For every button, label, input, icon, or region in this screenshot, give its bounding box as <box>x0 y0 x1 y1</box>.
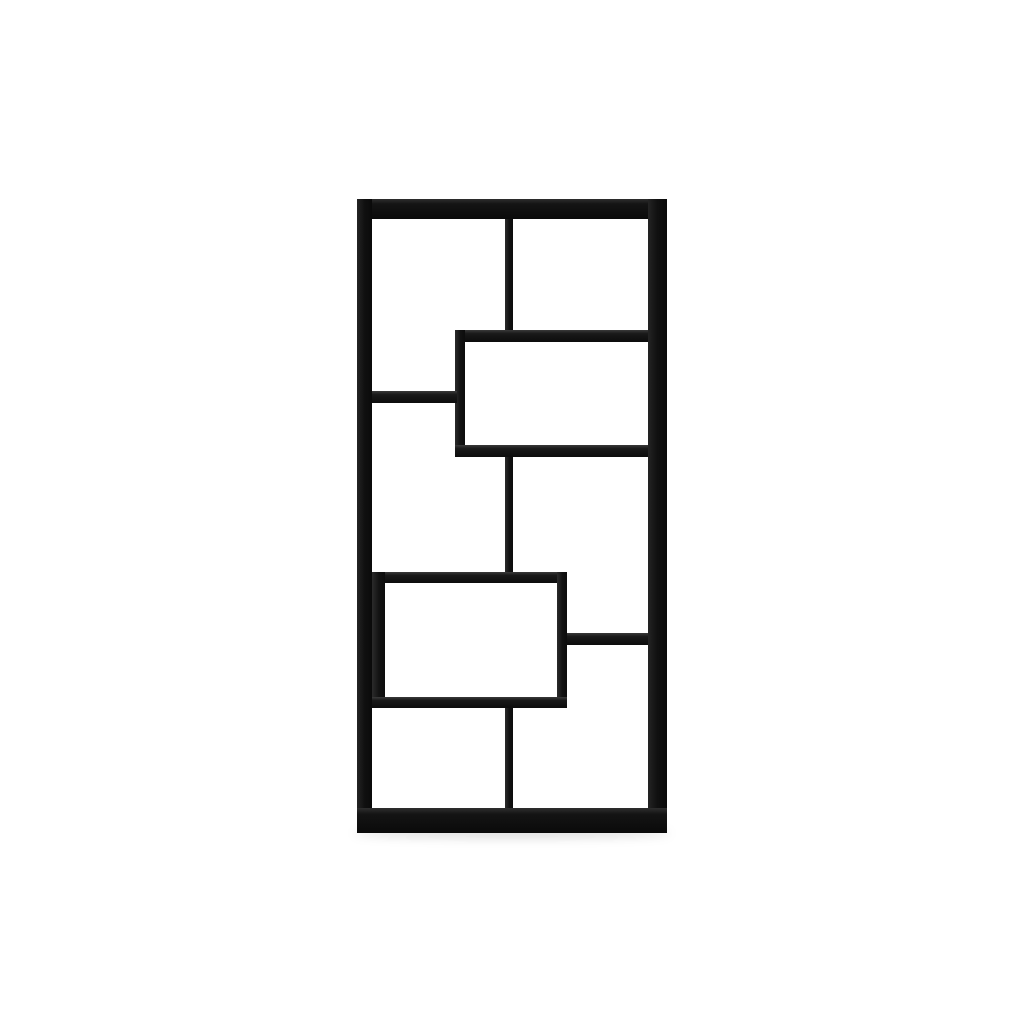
frame-right-side <box>648 199 667 833</box>
lower-box-left-wall <box>372 572 385 708</box>
frame-top-rail <box>357 199 667 219</box>
lower-box-bottom-shelf <box>372 697 567 708</box>
bookcase <box>357 199 667 833</box>
upper-box-top-shelf <box>455 330 648 342</box>
top-center-divider <box>505 219 513 331</box>
lower-box-top-shelf <box>372 572 567 583</box>
frame-left-side <box>357 199 372 833</box>
bottom-center-divider <box>505 708 513 808</box>
lower-right-shelf <box>567 633 648 645</box>
upper-left-shelf <box>372 391 457 403</box>
upper-box-bottom-shelf <box>455 445 648 457</box>
middle-center-divider <box>505 457 513 572</box>
frame-bottom-rail <box>357 808 667 833</box>
lower-box-right-wall <box>557 572 567 708</box>
product-image-canvas <box>0 0 1024 1024</box>
